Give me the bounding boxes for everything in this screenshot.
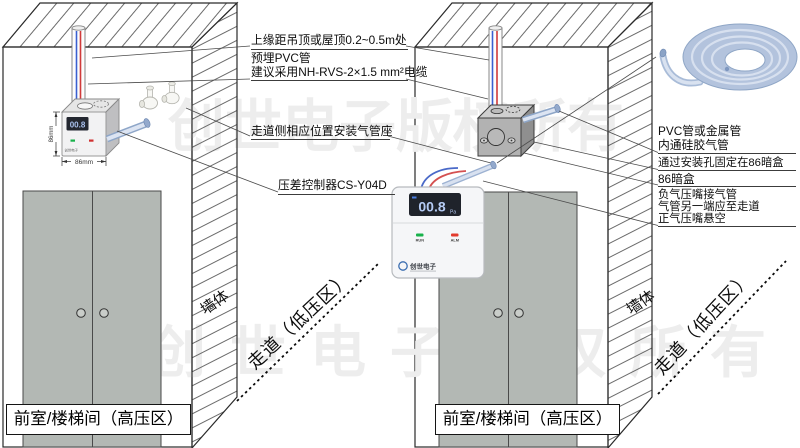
controller-display-value: 00.8 bbox=[418, 199, 445, 215]
callout-pvc-or-metal-pipe: PVC管或金属管 内通硅胶气管 bbox=[658, 124, 796, 154]
callout-text: 压差控制器CS-Y04D bbox=[278, 179, 395, 193]
left-room-wall-hatch bbox=[192, 3, 237, 448]
alarm-led-label: ALM bbox=[451, 238, 459, 243]
brand-logo-text: 创世电子 bbox=[409, 262, 437, 271]
small-controller-device: 00.8 创世电子 bbox=[62, 99, 119, 156]
callout-top-edge-distance: 上缘距吊顶或屋顶0.2~0.5m处 bbox=[251, 34, 408, 50]
callout-86-box: 86暗盒 bbox=[658, 173, 796, 187]
door-handle-icon bbox=[515, 309, 524, 318]
callout-pressure-nozzles: 负气压嘴接气管 气管另一端应至走道 正气压嘴悬空 bbox=[658, 189, 796, 228]
door-handle-icon bbox=[100, 309, 109, 318]
height-dimension-text: 86mm bbox=[49, 126, 55, 143]
callout-mounting-holes: 通过安装孔固定在86暗盒 bbox=[658, 157, 796, 171]
right-pvc-pipe bbox=[489, 26, 502, 112]
run-led-label: RUN bbox=[416, 238, 425, 243]
small-display-value: 00.8 bbox=[70, 121, 86, 130]
callout-text: 正气压嘴悬空 bbox=[658, 213, 796, 225]
callout-text: 预埋PVC管 bbox=[251, 52, 408, 66]
small-brand-text: 创世电子 bbox=[65, 148, 79, 153]
display-status-icon bbox=[412, 197, 417, 199]
room-label-left: 前室/楼梯间（高压区） bbox=[6, 404, 191, 435]
callout-text: 上缘距吊顶或屋顶0.2~0.5m处 bbox=[251, 34, 408, 48]
callout-text: 负气压嘴接气管 bbox=[658, 189, 796, 201]
callout-tube-socket-position: 走道侧相应位置安装气管座 bbox=[251, 125, 390, 141]
callout-text: 86暗盒 bbox=[658, 173, 796, 185]
callout-text: PVC管或金属管 bbox=[658, 124, 796, 138]
callout-text: 气管另一端应至走道 bbox=[658, 201, 796, 213]
width-dimension-text: 86mm bbox=[75, 159, 93, 166]
controller-display-unit: Pa bbox=[450, 210, 456, 216]
door-handle-icon bbox=[77, 309, 86, 318]
callout-text: 走道侧相应位置安装气管座 bbox=[251, 125, 390, 139]
small-run-led-icon bbox=[71, 140, 76, 142]
run-led-icon bbox=[416, 234, 424, 237]
alarm-led-icon bbox=[451, 234, 459, 237]
installation-diagram: 创世电子版权所有 创世电子版权所有 00. bbox=[0, 0, 800, 448]
callout-text: 通过安装孔固定在86暗盒 bbox=[658, 157, 796, 169]
junction-box-86 bbox=[478, 105, 534, 156]
callout-controller-model: 压差控制器CS-Y04D bbox=[278, 179, 395, 195]
right-room-wall-hatch bbox=[608, 3, 652, 448]
small-alarm-led-icon bbox=[89, 140, 94, 142]
callout-text: 内通硅胶气管 bbox=[658, 138, 796, 152]
room-label-right: 前室/楼梯间（高压区） bbox=[435, 404, 620, 435]
box-knockout-hole bbox=[488, 129, 505, 146]
callout-text: 建议采用NH-RVS-2×1.5 mm²电缆 bbox=[251, 66, 408, 80]
silicone-tube-coil bbox=[659, 24, 797, 90]
callout-embedded-pvc-cable: 预埋PVC管 建议采用NH-RVS-2×1.5 mm²电缆 bbox=[251, 52, 408, 81]
door-handle-icon bbox=[494, 309, 503, 318]
